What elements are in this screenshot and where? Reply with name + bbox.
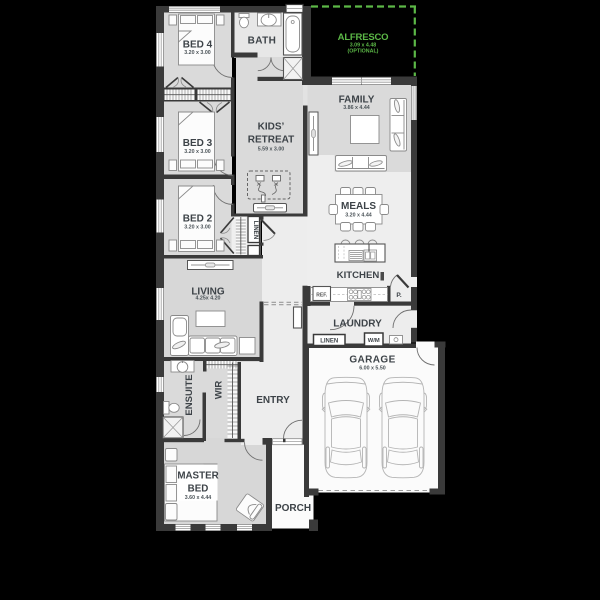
svg-text:(OPTIONAL): (OPTIONAL) — [348, 49, 379, 55]
svg-text:KITCHEN: KITCHEN — [337, 270, 380, 281]
svg-text:BATH: BATH — [248, 36, 277, 47]
svg-text:MEALS: MEALS — [341, 201, 376, 212]
svg-text:3.86 x 4.44: 3.86 x 4.44 — [343, 105, 370, 111]
svg-text:LINEN: LINEN — [252, 221, 259, 240]
svg-text:LAUNDRY: LAUNDRY — [333, 319, 382, 330]
svg-text:ALFRESCO: ALFRESCO — [338, 32, 389, 43]
svg-text:WIR: WIR — [214, 381, 225, 400]
svg-text:FAMILY: FAMILY — [339, 95, 375, 106]
svg-text:3.60 x 4.44: 3.60 x 4.44 — [185, 495, 212, 501]
svg-text:6.00 x 5.50: 6.00 x 5.50 — [359, 366, 386, 372]
svg-text:LINEN: LINEN — [320, 338, 338, 344]
svg-text:3.20 x 4.44: 3.20 x 4.44 — [345, 212, 372, 218]
svg-text:KIDS’: KIDS’ — [258, 122, 285, 133]
svg-text:BED 3: BED 3 — [183, 138, 213, 149]
svg-text:REF.: REF. — [316, 292, 327, 298]
svg-text:BED: BED — [188, 484, 209, 495]
svg-text:RETREAT: RETREAT — [248, 135, 294, 146]
svg-text:GARAGE: GARAGE — [349, 355, 395, 366]
svg-text:MASTER: MASTER — [177, 471, 218, 482]
svg-text:BED 2: BED 2 — [183, 214, 213, 225]
svg-text:ENSUITE: ENSUITE — [184, 374, 195, 415]
svg-text:4.25x 4.20: 4.25x 4.20 — [195, 296, 220, 302]
svg-text:P.: P. — [396, 292, 401, 299]
svg-text:BED 4: BED 4 — [183, 40, 213, 51]
svg-text:3.20 x 3.00: 3.20 x 3.00 — [184, 149, 211, 155]
svg-text:5.59 x 3.00: 5.59 x 3.00 — [258, 147, 285, 153]
svg-text:W/M: W/M — [368, 338, 380, 344]
svg-text:3.20 x 3.00: 3.20 x 3.00 — [184, 50, 211, 56]
svg-text:PORCH: PORCH — [275, 503, 311, 514]
svg-text:3.20 x 3.00: 3.20 x 3.00 — [184, 224, 211, 230]
svg-text:ENTRY: ENTRY — [256, 395, 290, 406]
